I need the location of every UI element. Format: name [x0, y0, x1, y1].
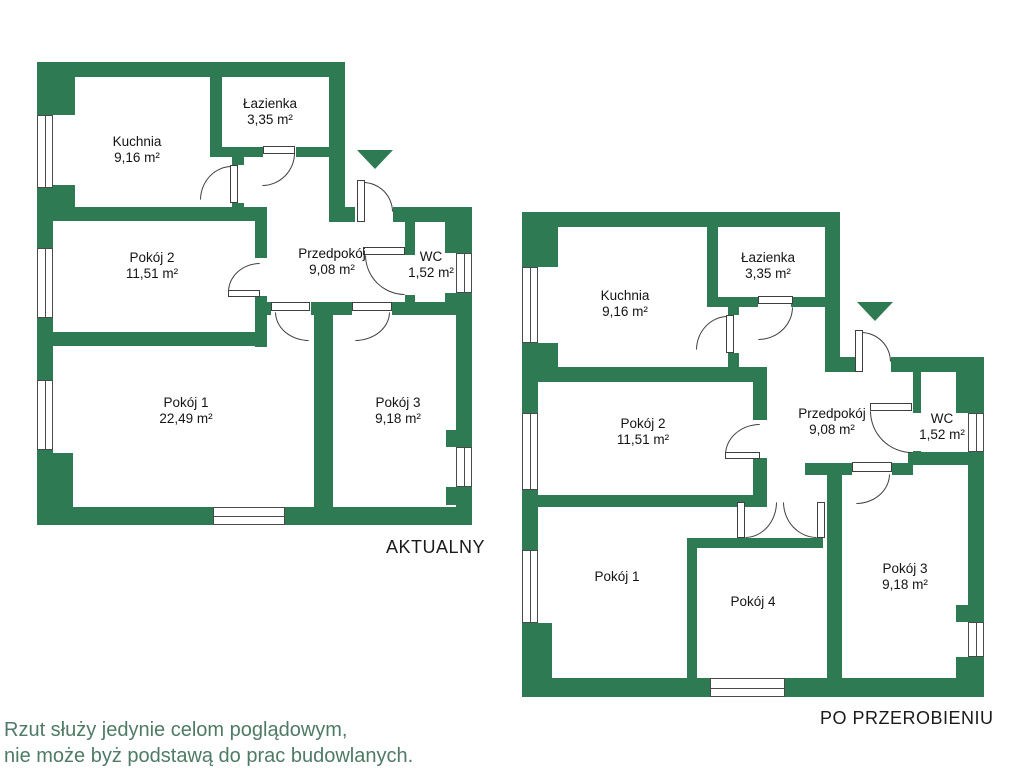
wall-segment [687, 538, 697, 678]
room-area: 3,35 m² [741, 266, 795, 282]
room-label-kuchnia: Kuchnia 9,16 m² [601, 288, 650, 320]
room-area: 3,35 m² [243, 112, 297, 128]
window [522, 550, 538, 623]
wall-segment [53, 207, 267, 221]
room-label-pokoj1: Pokój 1 22,49 m² [159, 395, 212, 427]
wall-segment [538, 623, 552, 678]
door-leaf [855, 330, 863, 372]
door-leaf [352, 302, 392, 311]
room-label-pokoj2: Pokój 2 11,51 m² [126, 250, 178, 282]
wall-segment [538, 343, 558, 369]
room-name: Kuchnia [601, 288, 650, 304]
room-name: WC [919, 411, 965, 427]
door-swing-arc [870, 411, 912, 453]
room-area: 1,52 m² [408, 265, 454, 281]
room-area: 9,18 m² [882, 577, 928, 593]
window [456, 447, 472, 487]
room-area: 9,08 m² [798, 422, 866, 438]
door-leaf [870, 403, 912, 411]
room-label-pokoj3: Pokój 3 9,18 m² [882, 561, 928, 593]
door-leaf [737, 502, 745, 538]
door-leaf [725, 452, 760, 459]
door-leaf [357, 180, 365, 222]
door-swing-arc [758, 307, 793, 340]
plan-title-po-przerobieniu: PO PRZEROBIENIU [820, 708, 994, 729]
wall-segment [538, 495, 753, 507]
door-leaf [817, 502, 825, 538]
window [213, 507, 285, 525]
room-label-wc: WC 1,52 m² [919, 411, 965, 443]
wall-segment [707, 227, 718, 307]
room-name: Pokój 2 [617, 416, 669, 432]
wall-segment [53, 332, 267, 346]
room-name: Przedpokój [298, 246, 366, 262]
room-label-lazienka: Łazienka 3,35 m² [741, 250, 795, 282]
door-swing-arc [861, 332, 891, 362]
wall-segment [538, 367, 767, 382]
wall-segment [825, 212, 840, 372]
wall-segment [37, 62, 345, 77]
room-area: 9,08 m² [298, 262, 366, 278]
disclaimer: Rzut służy jedynie celom poglądowym, nie… [4, 717, 413, 768]
room-name: Pokój 1 [159, 395, 212, 411]
wall-segment [314, 303, 333, 507]
room-area: 9,16 m² [601, 304, 650, 320]
door-leaf [758, 296, 793, 304]
plan-title-aktualny: AKTUALNY [386, 537, 485, 558]
room-label-przedpokoj: Przedpokój 9,08 m² [298, 246, 366, 278]
door-leaf [230, 165, 238, 203]
door-leaf [228, 290, 260, 297]
room-area: 11,51 m² [126, 266, 178, 282]
door-leaf [726, 315, 734, 353]
room-label-pokoj4: Pokój 4 [730, 594, 775, 610]
room-name: Łazienka [243, 96, 297, 112]
window [522, 413, 538, 490]
wall-segment [956, 605, 968, 622]
wall-segment [825, 357, 984, 372]
room-area: 9,18 m² [375, 411, 421, 427]
wall-segment [956, 372, 968, 413]
room-label-przedpokoj: Przedpokój 9,08 m² [798, 406, 866, 438]
room-name: Pokój 1 [594, 569, 639, 585]
room-name: Kuchnia [113, 134, 162, 150]
door-swing-arc [696, 316, 728, 350]
disclaimer-line1: Rzut służy jedynie celom poglądowym, [4, 717, 413, 743]
window [456, 253, 472, 293]
room-label-lazienka: Łazienka 3,35 m² [243, 96, 297, 128]
room-name: Łazienka [741, 250, 795, 266]
floorplan-canvas: Kuchnia 9,16 m² Łazienka 3,35 m² Pokój 2… [0, 0, 1024, 768]
room-name: Pokój 3 [882, 561, 928, 577]
disclaimer-line2: nie może byż podstawą do prac budowlanyc… [4, 743, 413, 768]
entrance-arrow [357, 150, 393, 169]
room-name: Pokój 2 [126, 250, 178, 266]
window [968, 413, 984, 452]
window [710, 678, 785, 697]
door-swing-arc [856, 474, 890, 504]
window [522, 267, 538, 343]
wall-segment [522, 212, 840, 227]
room-label-kuchnia: Kuchnia 9,16 m² [113, 134, 162, 166]
window [37, 380, 53, 450]
wall-segment [827, 463, 842, 678]
door-swing-arc [725, 424, 760, 455]
door-swing-arc [783, 502, 817, 538]
wall-segment [329, 62, 345, 222]
window [37, 115, 53, 188]
floorplan-po-przerobieniu: Kuchnia 9,16 m² Łazienka 3,35 m² Pokój 2… [0, 0, 1024, 768]
wall-segment [908, 452, 984, 465]
room-area: 1,52 m² [919, 427, 965, 443]
door-leaf [271, 302, 310, 311]
room-area: 11,51 m² [617, 432, 669, 448]
wall-segment [53, 453, 73, 507]
room-label-wc: WC 1,52 m² [408, 249, 454, 281]
wall-segment [956, 657, 968, 678]
room-label-pokoj2: Pokój 2 11,51 m² [617, 416, 669, 448]
door-leaf [263, 146, 295, 154]
window [37, 248, 53, 318]
room-name: Pokój 3 [375, 395, 421, 411]
wall-segment [446, 487, 456, 505]
room-name: Pokój 4 [730, 594, 775, 610]
wall-segment [210, 77, 222, 157]
room-label-pokoj3: Pokój 3 9,18 m² [375, 395, 421, 427]
room-name: WC [408, 249, 454, 265]
wall-segment [538, 227, 558, 267]
room-area: 22,49 m² [159, 411, 212, 427]
wall-segment [687, 538, 823, 548]
room-area: 9,16 m² [113, 150, 162, 166]
entrance-arrow [857, 302, 893, 321]
room-name: Przedpokój [798, 406, 866, 422]
door-swing-arc [745, 502, 777, 538]
wall-segment [53, 77, 75, 115]
window [968, 622, 984, 657]
room-label-pokoj1: Pokój 1 [594, 569, 639, 585]
wall-segment [329, 207, 472, 222]
wall-segment [446, 430, 456, 447]
door-leaf [852, 462, 892, 472]
door-leaf [363, 247, 405, 255]
